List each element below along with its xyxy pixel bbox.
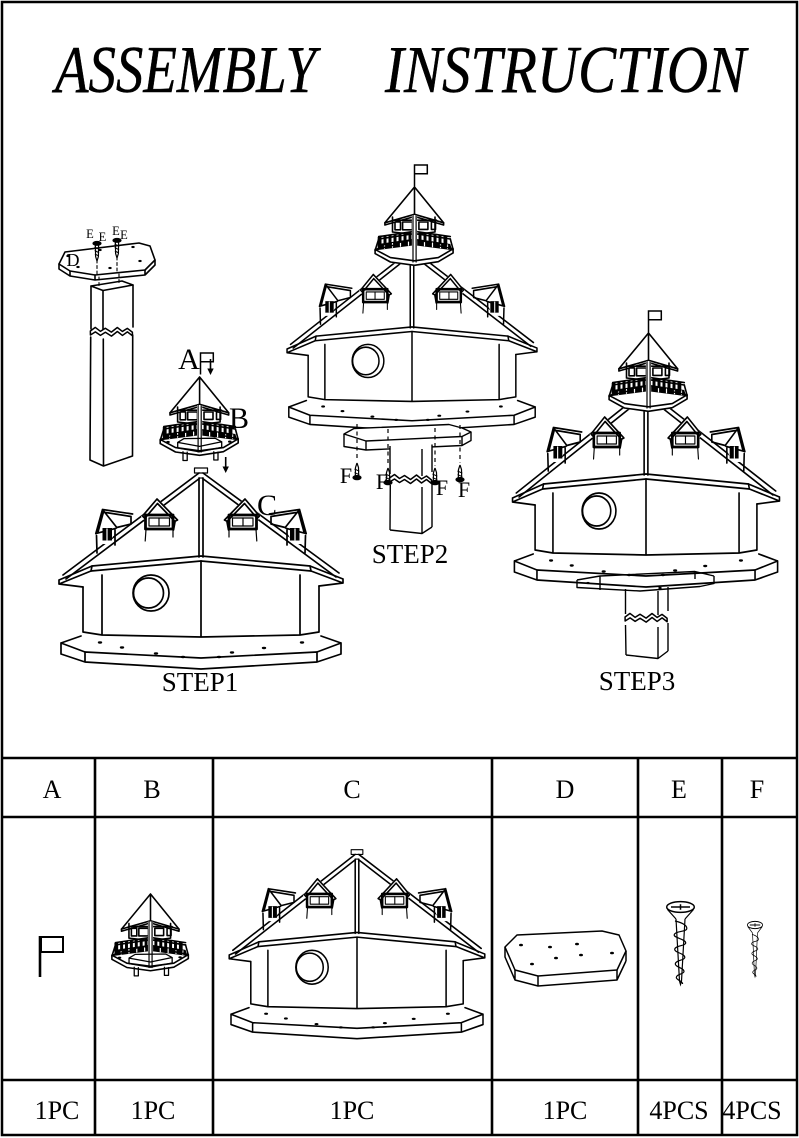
svg-text:1PC: 1PC — [35, 1096, 80, 1125]
svg-text:E: E — [120, 228, 128, 242]
svg-text:A: A — [43, 775, 62, 804]
svg-text:A: A — [178, 343, 200, 376]
svg-text:E: E — [671, 775, 687, 804]
svg-text:1PC: 1PC — [543, 1096, 588, 1125]
svg-text:D: D — [67, 250, 80, 270]
svg-text:E: E — [99, 230, 107, 244]
svg-text:F: F — [436, 475, 448, 500]
svg-text:STEP2: STEP2 — [372, 539, 449, 569]
svg-text:ASSEMBLY: ASSEMBLY — [52, 33, 322, 107]
svg-text:C: C — [257, 489, 277, 522]
svg-text:B: B — [143, 775, 160, 804]
svg-text:F: F — [340, 463, 352, 488]
svg-text:D: D — [556, 775, 575, 804]
svg-text:STEP3: STEP3 — [599, 666, 676, 696]
svg-text:4PCS: 4PCS — [722, 1096, 781, 1125]
svg-text:E: E — [86, 227, 94, 241]
svg-text:1PC: 1PC — [131, 1096, 176, 1125]
svg-text:1PC: 1PC — [330, 1096, 375, 1125]
svg-text:C: C — [343, 775, 360, 804]
svg-text:F: F — [458, 477, 470, 502]
svg-text:E: E — [112, 224, 120, 238]
svg-text:STEP1: STEP1 — [162, 667, 239, 697]
svg-text:B: B — [229, 402, 249, 435]
svg-text:F: F — [750, 775, 764, 804]
svg-text:F: F — [376, 469, 388, 494]
svg-text:INSTRUCTION: INSTRUCTION — [384, 33, 749, 107]
svg-text:4PCS: 4PCS — [649, 1096, 708, 1125]
